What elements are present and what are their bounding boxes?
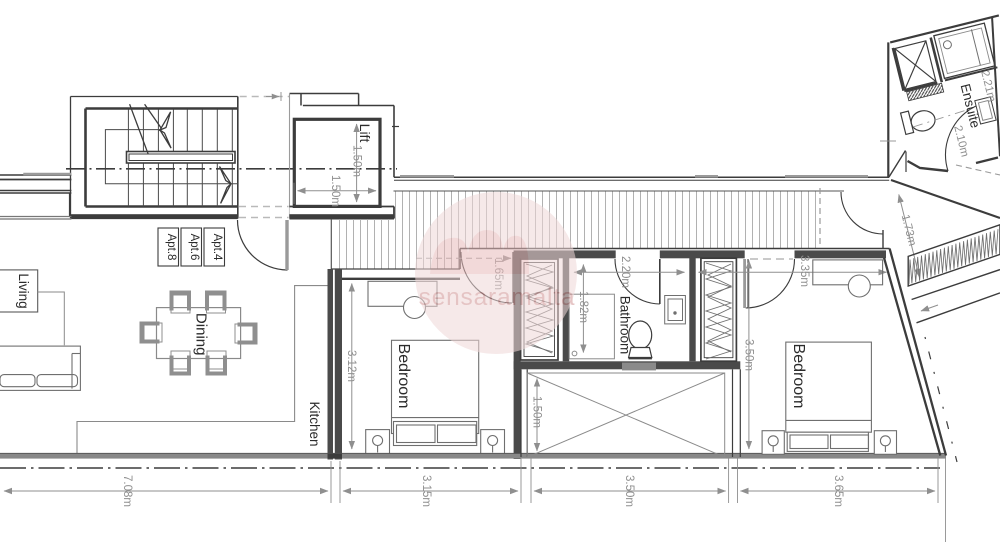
svg-text:Bedroom: Bedroom: [395, 344, 412, 409]
svg-text:3.15m: 3.15m: [420, 475, 432, 507]
svg-text:Apt.8: Apt.8: [165, 234, 177, 261]
svg-text:1.50m: 1.50m: [329, 175, 341, 207]
svg-text:3.12m: 3.12m: [345, 350, 357, 382]
svg-text:3.50m: 3.50m: [743, 339, 755, 371]
svg-text:3.35m: 3.35m: [798, 255, 810, 287]
svg-text:1.50m: 1.50m: [351, 145, 363, 177]
svg-text:1.82m: 1.82m: [577, 291, 589, 323]
svg-text:7.08m: 7.08m: [121, 475, 133, 507]
svg-text:1.50m: 1.50m: [531, 396, 543, 428]
svg-text:Lift: Lift: [357, 124, 373, 143]
svg-text:3.50m: 3.50m: [623, 475, 635, 507]
svg-text:3.65m: 3.65m: [832, 475, 844, 507]
svg-text:Living: Living: [16, 273, 31, 308]
svg-text:Dining: Dining: [192, 313, 209, 356]
svg-text:Kitchen: Kitchen: [307, 401, 322, 446]
svg-text:Bathroom: Bathroom: [618, 296, 633, 355]
svg-text:2.20m: 2.20m: [619, 256, 631, 288]
svg-text:sensaramalta: sensaramalta: [419, 284, 576, 311]
svg-text:Apt.4: Apt.4: [211, 234, 223, 261]
svg-text:Bedroom: Bedroom: [790, 344, 807, 409]
svg-text:Apt.6: Apt.6: [188, 234, 200, 261]
